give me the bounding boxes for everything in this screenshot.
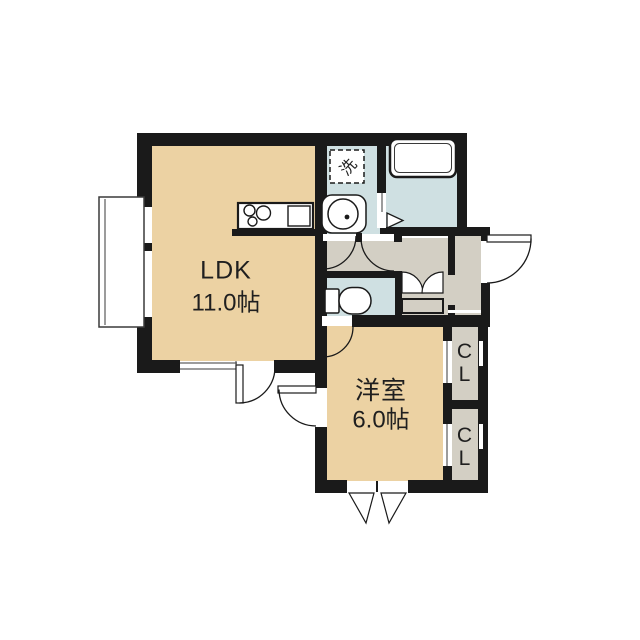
floor-plan: LDK 11.0帖 洋室 6.0帖 CL CL 洗 — [0, 0, 640, 640]
bathtub — [390, 139, 456, 177]
wall-western-bottom-right — [408, 480, 488, 493]
kitchen-sink — [288, 206, 310, 226]
floor-plan-drawing — [0, 0, 640, 640]
ldk-room-label: LDK — [200, 257, 252, 286]
entrance-step-line — [448, 310, 481, 313]
basin-drain-icon — [345, 215, 350, 220]
entrance-door-arc — [487, 239, 531, 284]
shoe-closet-box — [402, 299, 443, 313]
wall-hall-entrance-divider-upper — [448, 236, 455, 275]
stove-burner-icon — [248, 217, 257, 226]
wall-bath-bottom — [380, 227, 490, 236]
western-side-door-leaf — [278, 386, 316, 393]
western-left-door-opening — [315, 388, 327, 427]
closet-bottom-label: CL — [453, 424, 475, 470]
ldk-area-label: 11.0帖 — [192, 283, 261, 318]
kitchen-counter — [238, 203, 313, 229]
wall-western-top-left — [315, 315, 322, 327]
ldk-terrace-door-arc — [240, 367, 276, 403]
toilet-bowl — [339, 288, 371, 315]
wall-closet-left-a — [443, 315, 452, 341]
wall-ldk-bottom-left — [137, 360, 180, 373]
bathtub-outer — [390, 139, 456, 177]
wash-basin — [322, 195, 366, 233]
wall-entrance-right-lower — [481, 283, 490, 318]
western-bottom-door-center-jamb — [376, 481, 378, 492]
entrance-door-leaf — [487, 235, 531, 242]
bay-window — [99, 197, 144, 327]
washroom-door-opening-right — [362, 234, 394, 241]
wall-washroom-bath-divider — [377, 133, 386, 193]
basin-bowl-icon — [328, 199, 358, 229]
wall-closet-divider — [443, 400, 488, 409]
stove-burner-icon — [244, 205, 255, 216]
wall-western-top-right — [352, 315, 490, 327]
ldk-terrace-door-leaf — [236, 365, 243, 403]
stove-burner-icon — [257, 206, 271, 220]
closet-top-wall-slit — [479, 341, 483, 366]
wall-toilet-top — [315, 271, 402, 278]
ldk-room-floor — [142, 138, 320, 365]
entrance-floor — [450, 233, 486, 318]
wall-toilet-right — [395, 271, 402, 318]
toilet — [325, 288, 371, 315]
western-area-label: 6.0帖 — [352, 400, 409, 435]
western-side-door-arc — [279, 390, 316, 427]
washroom-door-opening-left — [323, 234, 356, 241]
western-bottom-door-flap-right — [381, 493, 406, 523]
wall-ldk-bottom-right — [274, 360, 320, 373]
entrance-door-opening — [481, 241, 490, 283]
wall-center-vertical-upper — [315, 133, 327, 388]
closet-bottom-wall-slit — [479, 424, 483, 449]
western-entry-door-opening — [322, 316, 352, 326]
wall-bath-right — [457, 133, 467, 236]
wall-left-upper — [137, 133, 152, 207]
toilet-tank — [325, 289, 339, 313]
closet-top-label: CL — [453, 340, 475, 386]
western-bottom-door-flap-left — [349, 493, 374, 523]
wall-western-bottom-left — [315, 480, 347, 493]
